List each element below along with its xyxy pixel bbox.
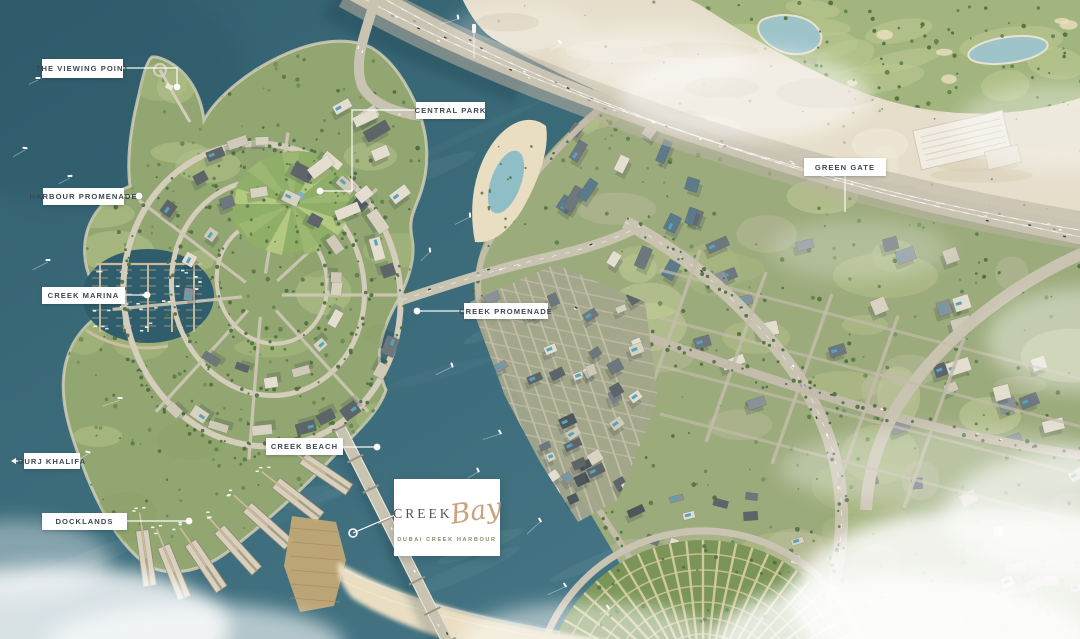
map-label-creek-beach[interactable]: CREEK BEACH [266,438,343,455]
map-label-creek-marina[interactable]: CREEK MARINA [42,287,125,304]
map-label-creek-promenade[interactable]: CREEK PROMENADE [464,303,548,319]
logo-bay-script: Bay [448,492,503,531]
map-label-harbour-promenade[interactable]: HARBOUR PROMENADE [43,188,124,205]
map-label-text: CENTRAL PARK [415,106,487,115]
map-label-text: CREEK PROMENADE [459,307,553,316]
map-label-green-gate[interactable]: GREEN GATE [804,158,886,176]
masterplan-map: THE VIEWING POINTCENTRAL PARKGREEN GATEH… [0,0,1080,639]
map-label-text: CREEK MARINA [48,291,120,300]
map-label-text: CREEK BEACH [271,442,338,451]
map-label-text: THE VIEWING POINT [36,64,129,73]
map-label-text: HARBOUR PROMENADE [29,192,137,201]
map-label-text: BURJ KHALIFA [18,457,86,466]
map-label-the-viewing-point[interactable]: THE VIEWING POINT [42,59,123,78]
map-label-docklands[interactable]: DOCKLANDS [42,513,127,530]
map-label-burj-khalifa[interactable]: BURJ KHALIFA [24,453,80,469]
logo-creek-text: CREEK [393,506,452,522]
logo-subtitle: DUBAI CREEK HARBOUR [397,537,496,543]
logo-wordmark: CREEK Bay [393,494,500,528]
creek-bay-logo-card: CREEK Bay DUBAI CREEK HARBOUR [394,479,500,556]
map-label-text: GREEN GATE [815,163,875,172]
map-illustration [0,0,1080,639]
map-label-text: DOCKLANDS [56,517,114,526]
map-label-central-park[interactable]: CENTRAL PARK [416,102,485,119]
